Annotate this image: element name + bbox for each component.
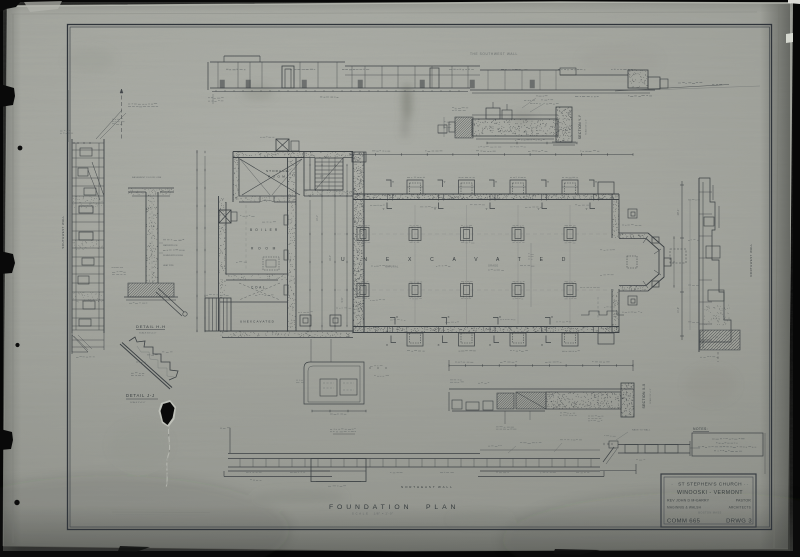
svg-text:Y: Y xyxy=(383,207,385,211)
svg-text:SECTION Y-Y: SECTION Y-Y xyxy=(578,114,582,139)
svg-text:MAGINNIS & WALSH: MAGINNIS & WALSH xyxy=(667,506,702,510)
svg-text:STORAGE: STORAGE xyxy=(266,169,289,173)
svg-text:X: X xyxy=(551,315,553,319)
svg-text:THE SOUTHWEST WALL: THE SOUTHWEST WALL xyxy=(470,52,518,56)
svg-text:Y: Y xyxy=(392,180,394,184)
svg-text:WINOOSKI - VERMONT: WINOOSKI - VERMONT xyxy=(677,490,743,496)
svg-text:SCALE 3/4"=1'-0": SCALE 3/4"=1'-0" xyxy=(585,119,588,135)
svg-text:Y: Y xyxy=(538,207,540,211)
svg-text:Y: Y xyxy=(547,180,549,184)
svg-text:28'-1": 28'-1" xyxy=(676,209,680,216)
svg-text:SCALE 3/4"=1'-0": SCALE 3/4"=1'-0" xyxy=(649,388,652,404)
svg-text:ROOM: ROOM xyxy=(251,247,280,251)
svg-text:DRWG 3: DRWG 3 xyxy=(726,519,752,525)
svg-text:GRADE: GRADE xyxy=(488,265,499,268)
svg-text:·: · xyxy=(671,482,672,487)
svg-text:UNEXCAVATED: UNEXCAVATED xyxy=(341,257,584,263)
svg-text:X: X xyxy=(489,343,491,347)
svg-text:16'-4": 16'-4" xyxy=(329,255,332,261)
svg-text:RAKE TO WALL: RAKE TO WALL xyxy=(632,429,651,432)
svg-text:W.WATERPROOFING: W.WATERPROOFING xyxy=(163,254,183,257)
svg-text:FOUNDATION: FOUNDATION xyxy=(329,504,412,511)
svg-text:14'-1": 14'-1" xyxy=(316,215,319,221)
svg-text:ST STEPHEN'S CHURCH: ST STEPHEN'S CHURCH xyxy=(678,482,742,488)
svg-text:X: X xyxy=(541,343,543,347)
svg-text:SCALE 3/4"=1'-0": SCALE 3/4"=1'-0" xyxy=(139,332,156,335)
svg-text:ARCHITECTS: ARCHITECTS xyxy=(729,506,751,510)
svg-text:BASEMENT FLOOR LINE: BASEMENT FLOOR LINE xyxy=(132,176,162,179)
svg-text:COMM 665: COMM 665 xyxy=(667,519,701,525)
svg-text:S C A L E 1/8" = 1'-0": S C A L E 1/8" = 1'-0" xyxy=(352,512,394,516)
svg-text:UNEXCAVATED: UNEXCAVATED xyxy=(240,320,275,324)
svg-text:NORTHEAST: NORTHEAST xyxy=(401,485,437,489)
svg-text:WALL: WALL xyxy=(438,485,454,489)
svg-text:X: X xyxy=(438,343,440,347)
svg-text:ROOM: ROOM xyxy=(268,175,287,179)
svg-text:X: X xyxy=(499,315,501,319)
svg-text:NATURAL: NATURAL xyxy=(385,266,399,269)
svg-text:9'-6": 9'-6" xyxy=(341,297,344,302)
svg-text:DETAIL H-H: DETAIL H-H xyxy=(136,324,166,329)
svg-text:Y: Y xyxy=(495,180,497,184)
svg-text:X: X xyxy=(396,315,398,319)
svg-text:DETAIL J-J: DETAIL J-J xyxy=(126,393,155,398)
svg-text:X: X xyxy=(448,315,450,319)
svg-text:Y: Y xyxy=(434,207,436,211)
svg-text:NOTES:: NOTES: xyxy=(693,427,708,431)
svg-text:Y: Y xyxy=(595,180,597,184)
svg-text:SCALE 3"=1'-0": SCALE 3"=1'-0" xyxy=(130,401,146,404)
svg-text:PLAN: PLAN xyxy=(426,504,459,511)
svg-text:REV JOHN D M²GARRY: REV JOHN D M²GARRY xyxy=(667,499,710,503)
svg-text:HEAT PIPE: HEAT PIPE xyxy=(163,264,174,267)
svg-text:X: X xyxy=(386,343,388,347)
svg-text:· ·: · · xyxy=(744,482,748,487)
svg-text:NORTHWEST WALL: NORTHWEST WALL xyxy=(749,243,753,276)
svg-text:SECTION X-X: SECTION X-X xyxy=(642,383,646,408)
svg-text:UP: UP xyxy=(320,175,324,178)
svg-text:BOSTON MASS: BOSTON MASS xyxy=(698,511,721,515)
svg-text:Y: Y xyxy=(486,207,488,211)
svg-text:SOUTHWEST WALL: SOUTHWEST WALL xyxy=(61,215,65,248)
svg-text:Y: Y xyxy=(586,207,588,211)
svg-text:Y: Y xyxy=(444,180,446,184)
svg-text:BOILER RM: BOILER RM xyxy=(112,267,124,269)
svg-text:BOILER: BOILER xyxy=(250,228,280,232)
svg-text:14'-6": 14'-6" xyxy=(677,307,680,313)
svg-text:WATERPROOF: WATERPROOF xyxy=(163,244,178,247)
svg-text:PASTOR: PASTOR xyxy=(736,499,752,503)
